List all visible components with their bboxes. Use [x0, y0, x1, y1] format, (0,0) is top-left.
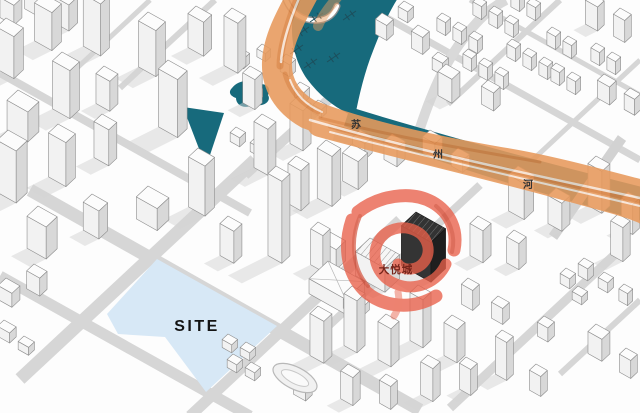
building: [317, 140, 341, 206]
building: [83, 194, 107, 239]
site-label: SITE: [174, 318, 220, 335]
building: [438, 64, 460, 103]
building: [49, 124, 76, 187]
building: [479, 58, 493, 81]
building: [547, 27, 561, 50]
building: [444, 315, 465, 363]
building: [27, 206, 57, 259]
building: [0, 18, 23, 79]
building: [607, 52, 621, 75]
building: [507, 39, 521, 62]
building: [0, 130, 27, 203]
building: [437, 13, 451, 36]
building: [35, 0, 62, 51]
river-label-char-su: 苏: [351, 118, 361, 131]
river-label-char-he: 河: [523, 179, 533, 191]
building: [421, 355, 440, 402]
building: [529, 364, 547, 396]
building: [495, 330, 513, 380]
river-label-char-zhou: 州: [432, 149, 443, 161]
building: [379, 374, 397, 409]
building: [461, 278, 479, 310]
building: [591, 43, 605, 66]
building: [507, 230, 526, 270]
building: [378, 314, 399, 367]
building: [463, 49, 477, 72]
building: [470, 216, 491, 263]
building: [567, 72, 581, 95]
building: [159, 60, 188, 138]
building: [453, 22, 467, 45]
landmark-label: 大悦城: [379, 263, 414, 276]
building: [220, 216, 242, 263]
building: [288, 156, 309, 211]
building: [189, 148, 215, 216]
building: [523, 48, 537, 71]
building: [94, 114, 117, 166]
building: [469, 31, 483, 54]
building: [563, 36, 577, 59]
building: [224, 8, 246, 73]
building: [254, 114, 276, 175]
building: [619, 348, 637, 378]
building: [551, 63, 565, 86]
building: [611, 214, 630, 262]
building: [343, 144, 368, 190]
building: [341, 364, 360, 406]
city-map-illustration: 苏 州 河 大悦城 SITE: [0, 0, 640, 413]
building: [505, 15, 519, 38]
building: [268, 166, 290, 263]
building: [489, 6, 503, 29]
building: [243, 66, 262, 110]
map-canvas: 苏 州 河 大悦城 SITE: [0, 0, 640, 413]
building: [188, 6, 212, 56]
building: [83, 0, 109, 56]
building: [310, 306, 332, 363]
building: [613, 8, 631, 42]
building: [459, 357, 477, 395]
building: [53, 52, 80, 119]
building: [96, 66, 118, 111]
